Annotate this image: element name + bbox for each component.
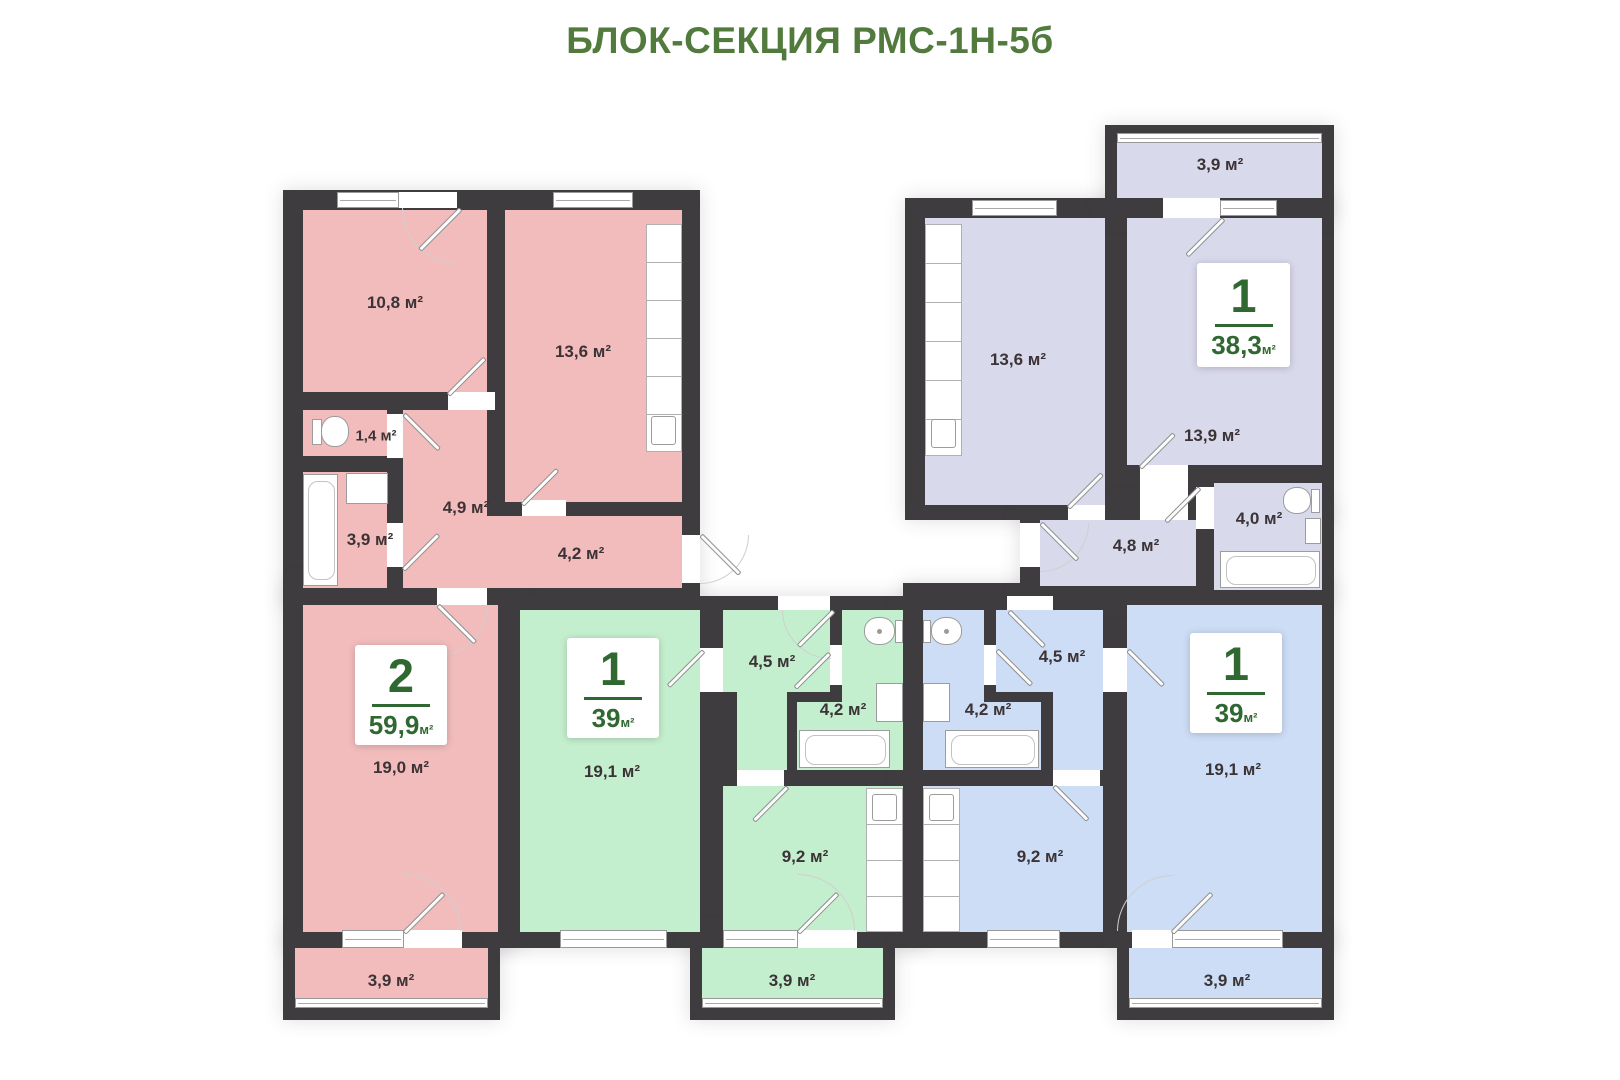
kitchen-sink-pink (651, 416, 676, 445)
window-pink-bedroom (337, 192, 399, 208)
glazing-balcony-pink (295, 998, 488, 1008)
door-gap-pink-living (437, 588, 487, 605)
unit-card-lavender[interactable]: 1 38,3м² (1197, 263, 1290, 367)
unit-card-pink-area-unit: м² (419, 722, 433, 737)
door-gap-green-kitchen (737, 770, 784, 786)
door-gap-green-bath (830, 645, 842, 685)
sink-green-bath (876, 683, 903, 722)
unit-card-blue-area-unit: м² (1243, 710, 1257, 725)
door-gap-blue-balcony (1132, 930, 1172, 948)
door-gap-green-balcony (798, 930, 857, 948)
window-green-kitchen (723, 930, 798, 948)
window-lavender-balcony-door (1220, 200, 1277, 216)
bathtub-pink-inner (308, 481, 335, 580)
toilet-tank-green (895, 620, 903, 643)
glazing-balcony-lavender (1117, 133, 1322, 143)
unit-card-green-area-value: 39 (592, 703, 621, 733)
unit-card-green-area-unit: м² (620, 715, 634, 730)
kitchen-sink-lavender (931, 419, 956, 448)
label-lavender-living: 13,9 м² (1184, 426, 1240, 446)
door-gap-pink-balcony (404, 930, 462, 948)
unit-card-lavender-area-value: 38,3 (1211, 330, 1262, 360)
toilet-dot-blue (944, 629, 949, 634)
unit-card-green[interactable]: 1 39м² (567, 638, 659, 738)
toilet-bowl-pink (321, 416, 349, 447)
toilet-bowl-lavender (1283, 487, 1311, 514)
door-gap-pink-entry-top (399, 192, 457, 208)
label-pink-bedroom: 10,8 м² (367, 293, 423, 313)
door-gap-pink-kitchen (522, 500, 566, 516)
window-pink-kitchen (553, 192, 633, 208)
label-blue-living: 19,1 м² (1205, 760, 1261, 780)
door-gap-pink-entry (682, 535, 700, 583)
label-blue-kitchen: 9,2 м² (1017, 847, 1064, 867)
sink-blue-bath (923, 683, 950, 722)
bathtub-blue-inner (951, 735, 1035, 765)
floor-plan: БЛОК-СЕКЦИЯ РМС-1Н-5б (0, 0, 1620, 1080)
door-gap-lavender-entry (1020, 523, 1040, 567)
unit-card-blue[interactable]: 1 39м² (1190, 633, 1282, 733)
window-lavender-kitchen (972, 200, 1057, 216)
unit-card-lavender-rooms: 1 (1230, 272, 1256, 319)
unit-card-green-rooms: 1 (600, 645, 626, 692)
label-green-kitchen: 9,2 м² (782, 847, 829, 867)
door-gap-blue-kitchen (1053, 770, 1100, 786)
label-lavender-bath: 4,0 м² (1236, 509, 1283, 529)
label-pink-hall: 4,9 м² (443, 498, 490, 518)
room-blue-passage[interactable] (1053, 692, 1103, 770)
door-gap-blue-entry (1007, 596, 1053, 610)
sink-pink-bath (346, 473, 388, 504)
window-pink-living (342, 930, 404, 948)
label-pink-wc: 1,4 м² (355, 428, 396, 445)
door-gap-blue-bath (984, 645, 996, 685)
unit-card-lavender-divider (1215, 324, 1273, 327)
unit-card-green-divider (584, 697, 642, 700)
bathtub-green-inner (805, 735, 886, 765)
sink-lavender-bath (1305, 518, 1321, 544)
door-gap-lavender-living (1140, 465, 1188, 520)
unit-card-lavender-area-unit: м² (1262, 342, 1276, 357)
label-blue-bath: 4,2 м² (965, 700, 1012, 720)
unit-card-green-area: 39м² (592, 705, 635, 731)
unit-card-blue-divider (1207, 692, 1265, 695)
toilet-tank-blue (923, 620, 931, 643)
label-lavender-kitchen: 13,6 м² (990, 350, 1046, 370)
bathtub-lavender-inner (1226, 556, 1316, 585)
kitchen-sink-blue (929, 794, 954, 821)
unit-card-lavender-area: 38,3м² (1211, 332, 1276, 358)
label-green-living: 19,1 м² (584, 762, 640, 782)
label-green-bath: 4,2 м² (820, 700, 867, 720)
unit-card-pink-rooms: 2 (388, 652, 414, 699)
toilet-dot-green (877, 629, 882, 634)
toilet-tank-lavender (1311, 489, 1320, 513)
unit-card-pink-area: 59,9м² (369, 712, 434, 738)
label-lavender-hall: 4,8 м² (1113, 536, 1160, 556)
label-pink-kitchen: 13,6 м² (555, 342, 611, 362)
label-blue-balcony: 3,9 м² (1204, 971, 1251, 991)
unit-card-blue-rooms: 1 (1223, 640, 1249, 687)
kitchen-sink-green (872, 794, 897, 821)
label-lavender-balcony: 3,9 м² (1197, 155, 1244, 175)
label-pink-bath: 3,9 м² (347, 530, 394, 550)
label-green-balcony: 3,9 м² (769, 971, 816, 991)
unit-card-blue-area-value: 39 (1215, 698, 1244, 728)
door-gap-blue-living (1103, 648, 1127, 692)
unit-card-pink-divider (372, 704, 430, 707)
label-pink-balcony: 3,9 м² (368, 971, 415, 991)
glazing-balcony-green (702, 998, 883, 1008)
label-green-hall: 4,5 м² (749, 652, 796, 672)
door-gap-pink-bedroom (448, 392, 495, 410)
unit-card-blue-area: 39м² (1215, 700, 1258, 726)
page-title: БЛОК-СЕКЦИЯ РМС-1Н-5б (0, 20, 1620, 62)
door-gap-lavender-kitchen (1068, 505, 1105, 520)
unit-card-pink-area-value: 59,9 (369, 710, 420, 740)
window-blue-kitchen (987, 930, 1060, 948)
glazing-balcony-blue (1129, 998, 1322, 1008)
room-green-passage[interactable] (737, 692, 787, 770)
unit-card-pink[interactable]: 2 59,9м² (355, 645, 447, 745)
window-green-living (560, 930, 667, 948)
label-blue-hall: 4,5 м² (1039, 647, 1086, 667)
door-gap-lavender-balcony (1163, 198, 1220, 218)
door-gap-green-entry (778, 596, 830, 610)
door-gap-lavender-bath (1196, 487, 1214, 529)
label-pink-living: 19,0 м² (373, 758, 429, 778)
window-blue-living (1172, 930, 1283, 948)
label-pink-corridor: 4,2 м² (558, 544, 605, 564)
